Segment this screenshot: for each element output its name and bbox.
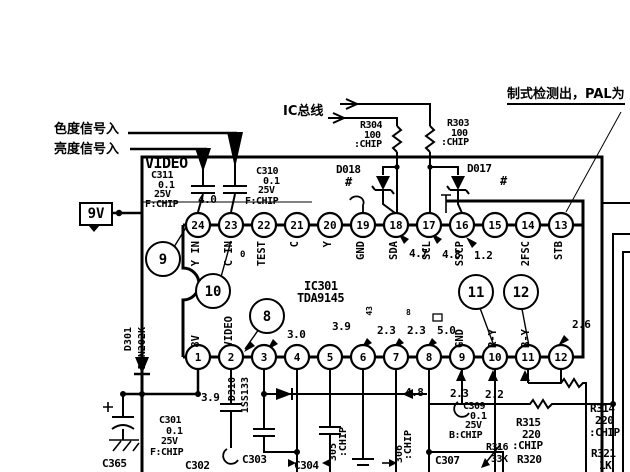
r315-type: :CHIP [512,440,543,451]
c311-type: F:CHIP [145,200,178,210]
r320-ref: R320 [517,454,542,465]
pin-number-17: 17 [422,219,435,232]
pin-number-8: 8 [426,351,433,364]
c310-capacitor-symbol [223,186,247,193]
c304-ref: C304 [294,460,319,471]
pin-number-7: 7 [393,351,400,364]
pin24-voltage: 4.0 [198,194,216,205]
pin-number-12: 12 [554,351,567,364]
chroma-in-label: 色度信号入 [54,123,119,136]
probe-arrow-pin10 [488,370,498,381]
c303-capacitor-wire [253,370,297,452]
r321-ref: R321 [591,448,616,459]
junction-dot [116,210,122,216]
pin11-pin12-wires [528,370,561,383]
pin17-voltage: 4.8 [442,249,460,260]
junction-dot [294,449,300,455]
pin12-voltage: 2.6 [572,319,590,330]
callout-leader-line [566,112,621,212]
pin-number-13: 13 [554,219,567,232]
pin-label-23: C IN [224,241,238,266]
pin-number-5: 5 [327,351,334,364]
luma-in-label: 亮度信号入 [54,143,119,156]
c306-type: :CHIP [404,430,414,460]
ic-right-edge [573,225,583,357]
pin6-note: 43 [366,306,374,316]
pin8-lower-voltage: 4.8 [405,387,423,398]
pin11-voltage: 2.2 [485,389,503,400]
pin-label-24: Y IN [191,241,205,266]
pin8-voltage: 5.0 [437,325,455,336]
d018-mark: # [345,176,352,188]
pin19-ground-curl-icon [350,196,364,212]
pin-number-11: 11 [521,351,535,364]
pin-label-14: 2FSC [521,241,535,266]
c365-ref: C365 [102,458,127,469]
pin-label-2: VIDEO [224,316,238,348]
pin2-voltage: 3.9 [201,392,219,403]
r303-resistor-symbol [426,126,434,152]
pin-label-20: Y [323,241,337,247]
junction-dot [139,391,145,397]
rail-end-bar [441,195,451,213]
callout-number-9: 9 [159,252,167,268]
r304-resistor-symbol [393,126,401,152]
bus-arrow-icons [333,99,357,123]
callout-number-12: 12 [513,285,530,301]
r316-ref: R316 [486,443,508,453]
ic-bus-label: IC总线 [283,105,323,118]
c309-type: B:CHIP [449,431,482,441]
d018-diode-symbol [376,176,390,190]
pin-number-18: 18 [389,219,402,232]
r303-type: :CHIP [441,138,469,148]
signal-wires [128,133,237,149]
c310-type: F:CHIP [245,197,278,207]
pin-number-24: 24 [191,219,205,232]
c305-type: :CHIP [339,427,349,457]
c365-capacitor-symbol [112,394,134,440]
pin3-voltage: 3.0 [287,329,305,340]
d017-ref: D017 [467,163,492,174]
pin-number-2: 2 [228,351,235,364]
d018-ref: D018 [336,164,361,175]
pin-number-16: 16 [455,219,469,232]
r315-ref: R315 [516,417,541,428]
pin-number-6: 6 [360,351,367,364]
pin-number-9: 9 [459,351,466,364]
video-block-label: VIDEO [145,156,188,171]
pin-label-19: GND [356,241,370,260]
pin-number-20: 20 [323,219,336,232]
c302-ref: C302 [185,460,210,471]
c301-voltage: 25V [161,437,178,447]
pin-number-3: 3 [261,351,268,364]
pin7-voltage: 2.3 [407,325,425,336]
d310-diode-symbol [276,388,292,400]
c311-capacitor-symbol [191,186,215,193]
pin18-voltage: 4.7 [409,248,427,259]
r314-ref: R314 [590,403,615,414]
pin-number-22: 22 [257,219,270,232]
c303-ref: C303 [242,454,267,465]
chroma-arrow-icon [227,132,243,168]
bus-columns [397,152,430,213]
pin-label-11: B-Y [521,329,535,348]
d310-part: 1SS133 [241,377,251,413]
pin-number-15: 15 [488,219,501,232]
probe-arrow-pin9 [456,370,466,381]
pin-label-18: SDA [389,241,403,260]
r316-value: 33K [491,455,508,465]
pin-label-1: 8V [191,335,205,348]
pin8-box-mark [433,314,442,321]
9v-supply-label: 9V [79,202,113,226]
callout9-line [174,226,187,247]
d301-ref: D301 [124,327,134,351]
pin-number-23: 23 [224,219,237,232]
r321-value: 1K [599,460,611,471]
pin-label-13: STB [554,241,568,260]
schematic-page: 242322212019181716151413123456789101112 … [0,0,630,472]
pin-number-4: 4 [294,351,301,364]
callout-number-10: 10 [205,284,222,300]
pin-number-21: 21 [290,219,304,232]
d301-part: DAN202K [138,327,148,369]
right-wire-2 [623,252,630,472]
pin6-voltage: 2.3 [377,325,395,336]
d017-diode-symbol [451,176,465,190]
polarity-plus-icon [103,402,113,412]
d310-ref: D310 [228,377,238,401]
pin-number-14: 14 [521,219,535,232]
ic-part: TDA9145 [297,292,344,304]
pin10-voltage: 2.3 [450,388,468,399]
pin-label-9: GND [455,329,469,348]
c301-type: F:CHIP [150,448,183,458]
pin5-voltage: 3.9 [332,321,350,332]
pin16-voltage: 1.2 [474,250,492,261]
c301-ref: C301 [159,416,181,426]
pin23-note: 0 [240,251,245,260]
r314-value: 220 [595,415,613,426]
c310-voltage: 25V [258,186,275,196]
pin-label-22: TEST [257,241,271,266]
pin-number-19: 19 [356,219,369,232]
c307-ref: C307 [435,455,460,466]
pin-label-10: R-Y [488,329,502,348]
d017-mark: # [500,175,507,187]
c302-ground-curl-icon [223,449,238,464]
earth-ground-icon [109,440,139,451]
9v-arrow-icon [88,225,100,232]
schematic-canvas: 242322212019181716151413123456789101112 … [0,0,630,472]
pin-number-1: 1 [195,351,202,364]
callout-number-11: 11 [468,285,485,301]
r314-type: :CHIP [589,427,620,438]
zener-diodes [350,167,469,213]
pin7-note: 8 [406,309,410,317]
pin-label-21: C [290,241,304,247]
pin-number-10: 10 [488,351,501,364]
pin6-chassis-ground-icon [352,370,374,465]
standard-detect-label: 制式检测出，PAL为 [507,88,625,105]
callout-number-8: 8 [263,309,271,325]
r304-type: :CHIP [354,140,382,150]
